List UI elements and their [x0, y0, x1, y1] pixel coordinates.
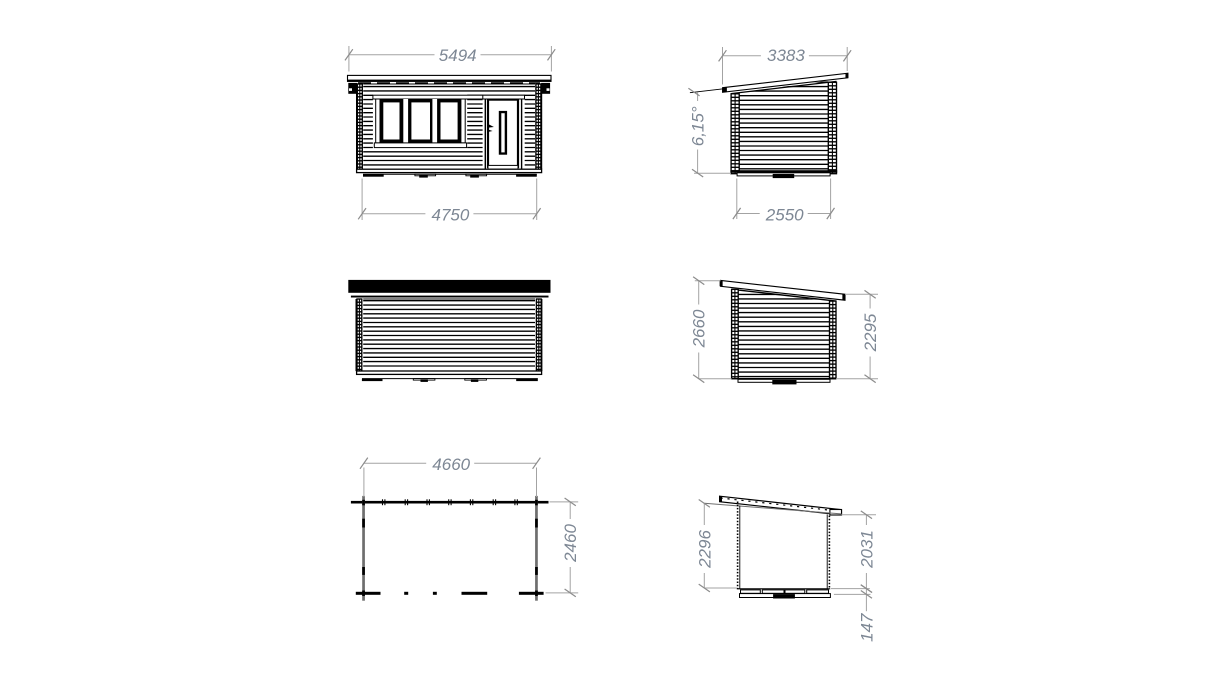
svg-text:2031: 2031 — [857, 530, 876, 569]
svg-text:2660: 2660 — [690, 309, 709, 348]
svg-text:2295: 2295 — [861, 313, 880, 352]
svg-text:147: 147 — [857, 613, 876, 642]
svg-text:6,15°: 6,15° — [689, 106, 708, 146]
svg-text:2550: 2550 — [765, 206, 804, 225]
svg-text:4660: 4660 — [432, 455, 470, 474]
svg-text:4750: 4750 — [431, 205, 469, 224]
svg-text:2460: 2460 — [561, 524, 580, 563]
svg-text:5494: 5494 — [439, 46, 477, 65]
svg-text:3383: 3383 — [767, 46, 805, 65]
svg-text:2296: 2296 — [695, 530, 714, 569]
